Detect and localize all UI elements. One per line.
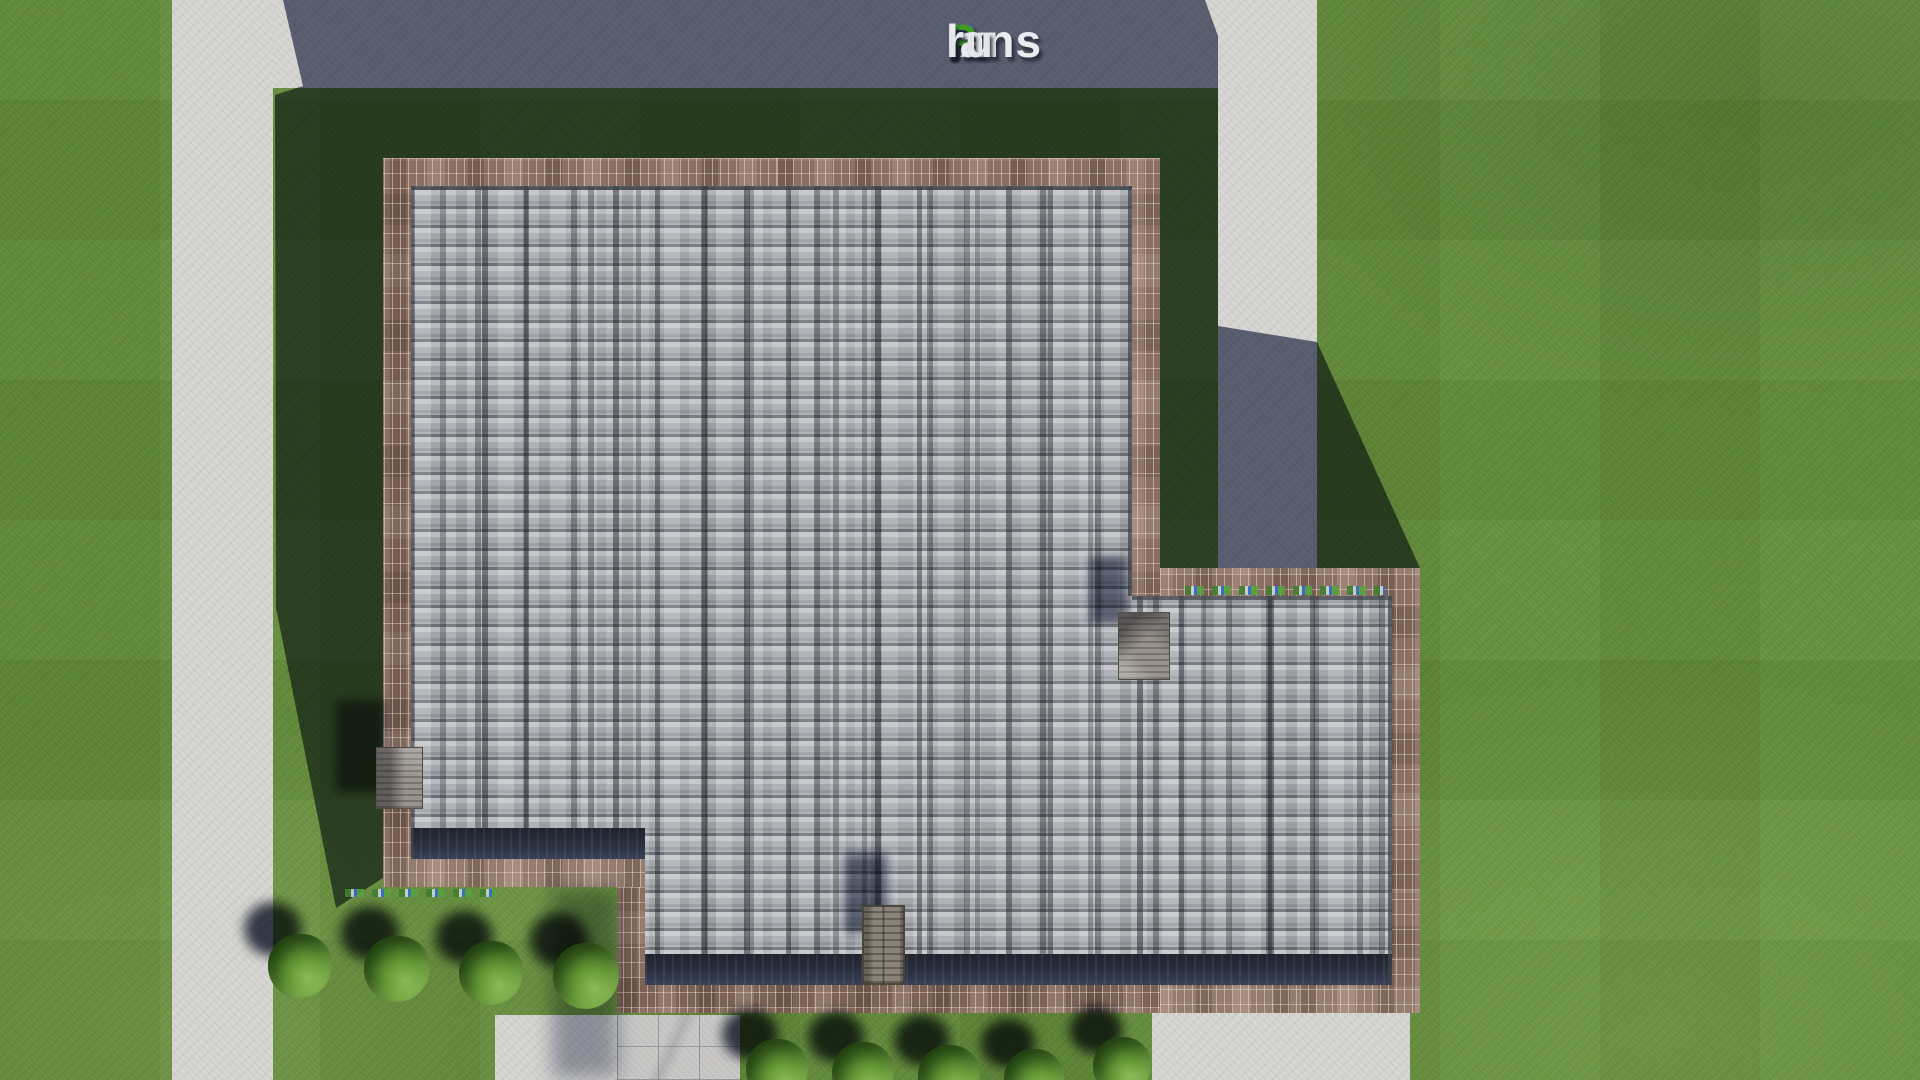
- flower-bed-wing: [1185, 586, 1385, 595]
- roof-edge-line-wing-top: [1132, 596, 1392, 600]
- parked-vehicles-row: [490, 2, 720, 64]
- path-bottom-right: [1152, 1013, 1410, 1080]
- roof-eave-shadow-left: [411, 828, 645, 859]
- bush: [1093, 1037, 1151, 1080]
- watermark-letter: ru: [946, 18, 994, 64]
- bay-roof-left: [376, 747, 423, 809]
- chimney: [862, 905, 905, 985]
- bush: [459, 941, 523, 1005]
- roof-edge-line-wing-right: [1388, 596, 1392, 985]
- bush: [364, 936, 430, 1002]
- vehicle-row: [489, 0, 716, 54]
- bay-roof-right: [1118, 612, 1170, 680]
- roof-eave-shadow-bottom: [645, 954, 1392, 985]
- roof-edge-line-right: [1128, 186, 1132, 596]
- roof-edge-line-top: [411, 186, 1132, 190]
- flower-bed-left: [345, 889, 495, 897]
- aerial-site-render: FixPlans.ru: [0, 0, 1920, 1080]
- bush: [268, 934, 332, 998]
- bush: [553, 943, 619, 1009]
